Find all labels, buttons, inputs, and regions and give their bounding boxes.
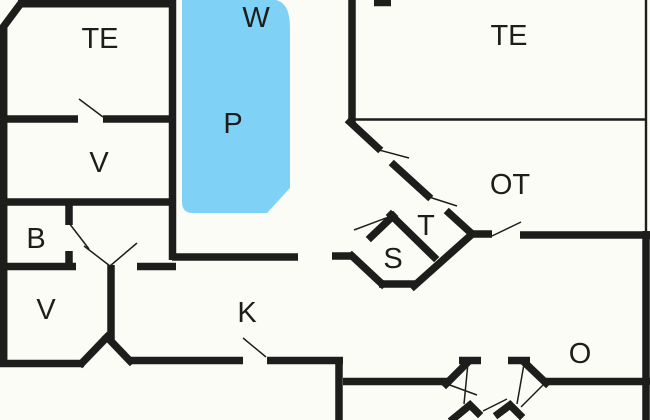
room-label-ot: OT: [490, 169, 531, 201]
room-label-o: O: [569, 338, 592, 370]
room-label-v-top: V: [89, 147, 109, 179]
walls-thick: [0, 0, 650, 420]
room-label-v-bottom: V: [36, 294, 56, 326]
room-label-t: T: [417, 210, 435, 242]
room-label-p: P: [223, 108, 242, 140]
room-label-b: B: [26, 223, 45, 255]
room-label-k: K: [237, 297, 257, 329]
pool-shape: [182, 0, 290, 213]
room-label-te-right: TE: [490, 20, 527, 52]
floor-plan-drawing: TE W P TE OT V B V K T S O: [0, 0, 650, 420]
room-label-w: W: [242, 2, 270, 34]
floor-plan: TE W P TE OT V B V K T S O: [0, 0, 650, 420]
room-label-te-left: TE: [81, 23, 118, 55]
room-label-s: S: [383, 243, 402, 275]
